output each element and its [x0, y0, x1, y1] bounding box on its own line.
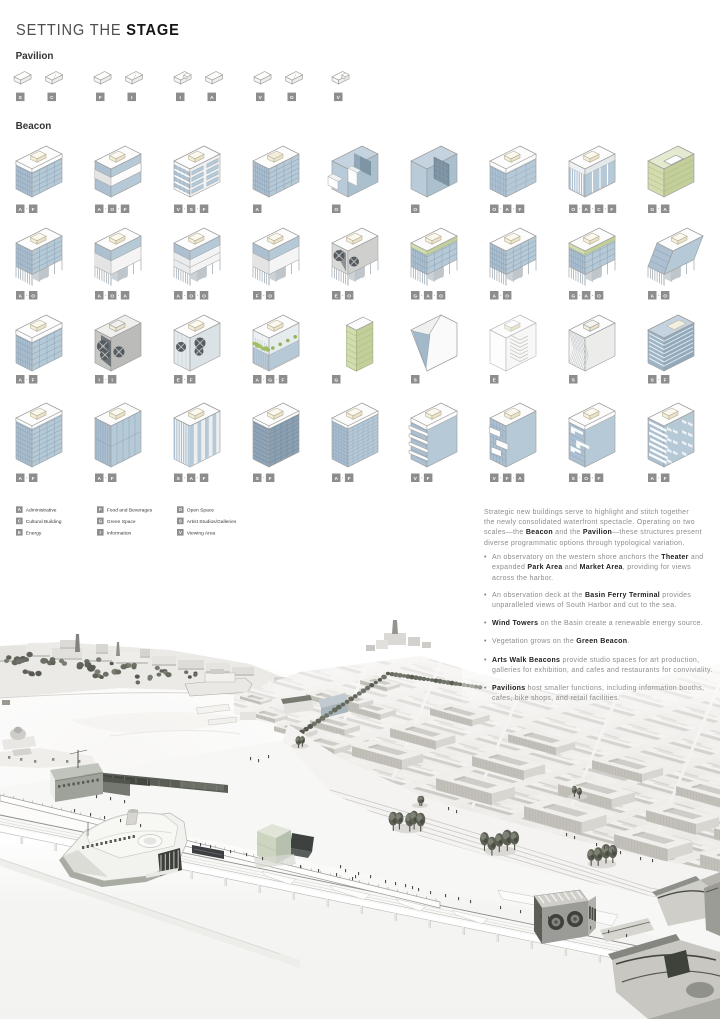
svg-text:F: F [190, 377, 193, 383]
svg-text:A: A [663, 207, 667, 213]
svg-text:A: A [97, 293, 101, 299]
svg-text:A: A [650, 293, 654, 299]
svg-text:O: O [110, 293, 114, 299]
svg-text:E: E [18, 530, 21, 535]
svg-text:A: A [518, 476, 522, 482]
svg-text:O: O [290, 95, 294, 101]
svg-text:F: F [203, 476, 206, 482]
svg-text:G: G [268, 377, 272, 383]
svg-text:A: A [123, 293, 127, 299]
svg-text:Information: Information [107, 530, 132, 536]
svg-text:O: O [110, 207, 114, 213]
svg-text:O: O [179, 507, 183, 512]
svg-text:O: O [334, 207, 338, 213]
svg-text:F: F [256, 293, 259, 299]
svg-text:A: A [650, 476, 654, 482]
svg-text:O: O [202, 293, 206, 299]
svg-text:O: O [31, 293, 35, 299]
svg-text:O: O [347, 293, 351, 299]
svg-text:C: C [50, 95, 54, 101]
svg-text:Cultural Building: Cultural Building [26, 519, 62, 525]
svg-text:Green Space: Green Space [107, 519, 136, 525]
svg-text:A: A [505, 207, 509, 213]
svg-text:S: S [179, 519, 182, 524]
svg-text:I: I [100, 530, 101, 535]
svg-text:F: F [664, 476, 667, 482]
svg-text:V: V [179, 530, 182, 535]
svg-text:O: O [268, 293, 272, 299]
svg-text:F: F [506, 476, 509, 482]
svg-text:Administrative: Administrative [26, 508, 57, 514]
svg-text:A: A [255, 377, 259, 383]
svg-text:O: O [584, 476, 588, 482]
svg-text:C: C [597, 207, 601, 213]
svg-text:A: A [18, 377, 22, 383]
svg-text:Open Space: Open Space [187, 508, 214, 514]
svg-text:F: F [32, 476, 35, 482]
svg-text:A: A [584, 207, 588, 213]
svg-text:G: G [571, 293, 575, 299]
svg-text:F: F [610, 207, 613, 213]
svg-text:F: F [664, 377, 667, 383]
svg-text:A: A [18, 476, 22, 482]
svg-text:A: A [18, 293, 22, 299]
svg-text:A: A [18, 207, 22, 213]
svg-text:A: A [492, 293, 496, 299]
svg-text:A: A [334, 476, 338, 482]
svg-text:F: F [203, 207, 206, 213]
svg-text:A: A [97, 207, 101, 213]
svg-text:F: F [282, 377, 285, 383]
svg-text:G: G [99, 519, 103, 524]
svg-text:A: A [255, 207, 259, 213]
svg-text:A: A [426, 293, 430, 299]
svg-text:O: O [439, 293, 443, 299]
svg-text:O: O [492, 207, 496, 213]
svg-text:F: F [124, 207, 127, 213]
svg-text:F: F [348, 476, 351, 482]
svg-text:O: O [505, 293, 509, 299]
svg-text:F: F [269, 476, 272, 482]
svg-text:F: F [99, 507, 102, 512]
svg-text:F: F [32, 377, 35, 383]
svg-text:O: O [571, 207, 575, 213]
svg-text:A: A [584, 293, 588, 299]
svg-text:A: A [97, 476, 101, 482]
svg-text:Artist Studios/Galleries: Artist Studios/Galleries [187, 519, 237, 525]
svg-text:G: G [650, 207, 654, 213]
svg-text:F: F [519, 207, 522, 213]
svg-text:F: F [99, 95, 102, 101]
svg-text:F: F [32, 207, 35, 213]
svg-text:A: A [210, 95, 214, 101]
svg-text:F: F [598, 476, 601, 482]
svg-text:A: A [176, 293, 180, 299]
svg-text:G: G [334, 377, 338, 383]
svg-text:O: O [597, 293, 601, 299]
svg-text:F: F [427, 476, 430, 482]
svg-text:Energy: Energy [26, 530, 42, 536]
svg-text:O: O [413, 207, 417, 213]
svg-text:O: O [663, 293, 667, 299]
svg-text:Food and Beverages: Food and Beverages [107, 508, 153, 514]
svg-text:G: G [413, 293, 417, 299]
svg-text:F: F [111, 476, 114, 482]
svg-text:A: A [189, 476, 193, 482]
svg-text:O: O [189, 293, 193, 299]
svg-text:Viewing Area: Viewing Area [187, 530, 216, 536]
